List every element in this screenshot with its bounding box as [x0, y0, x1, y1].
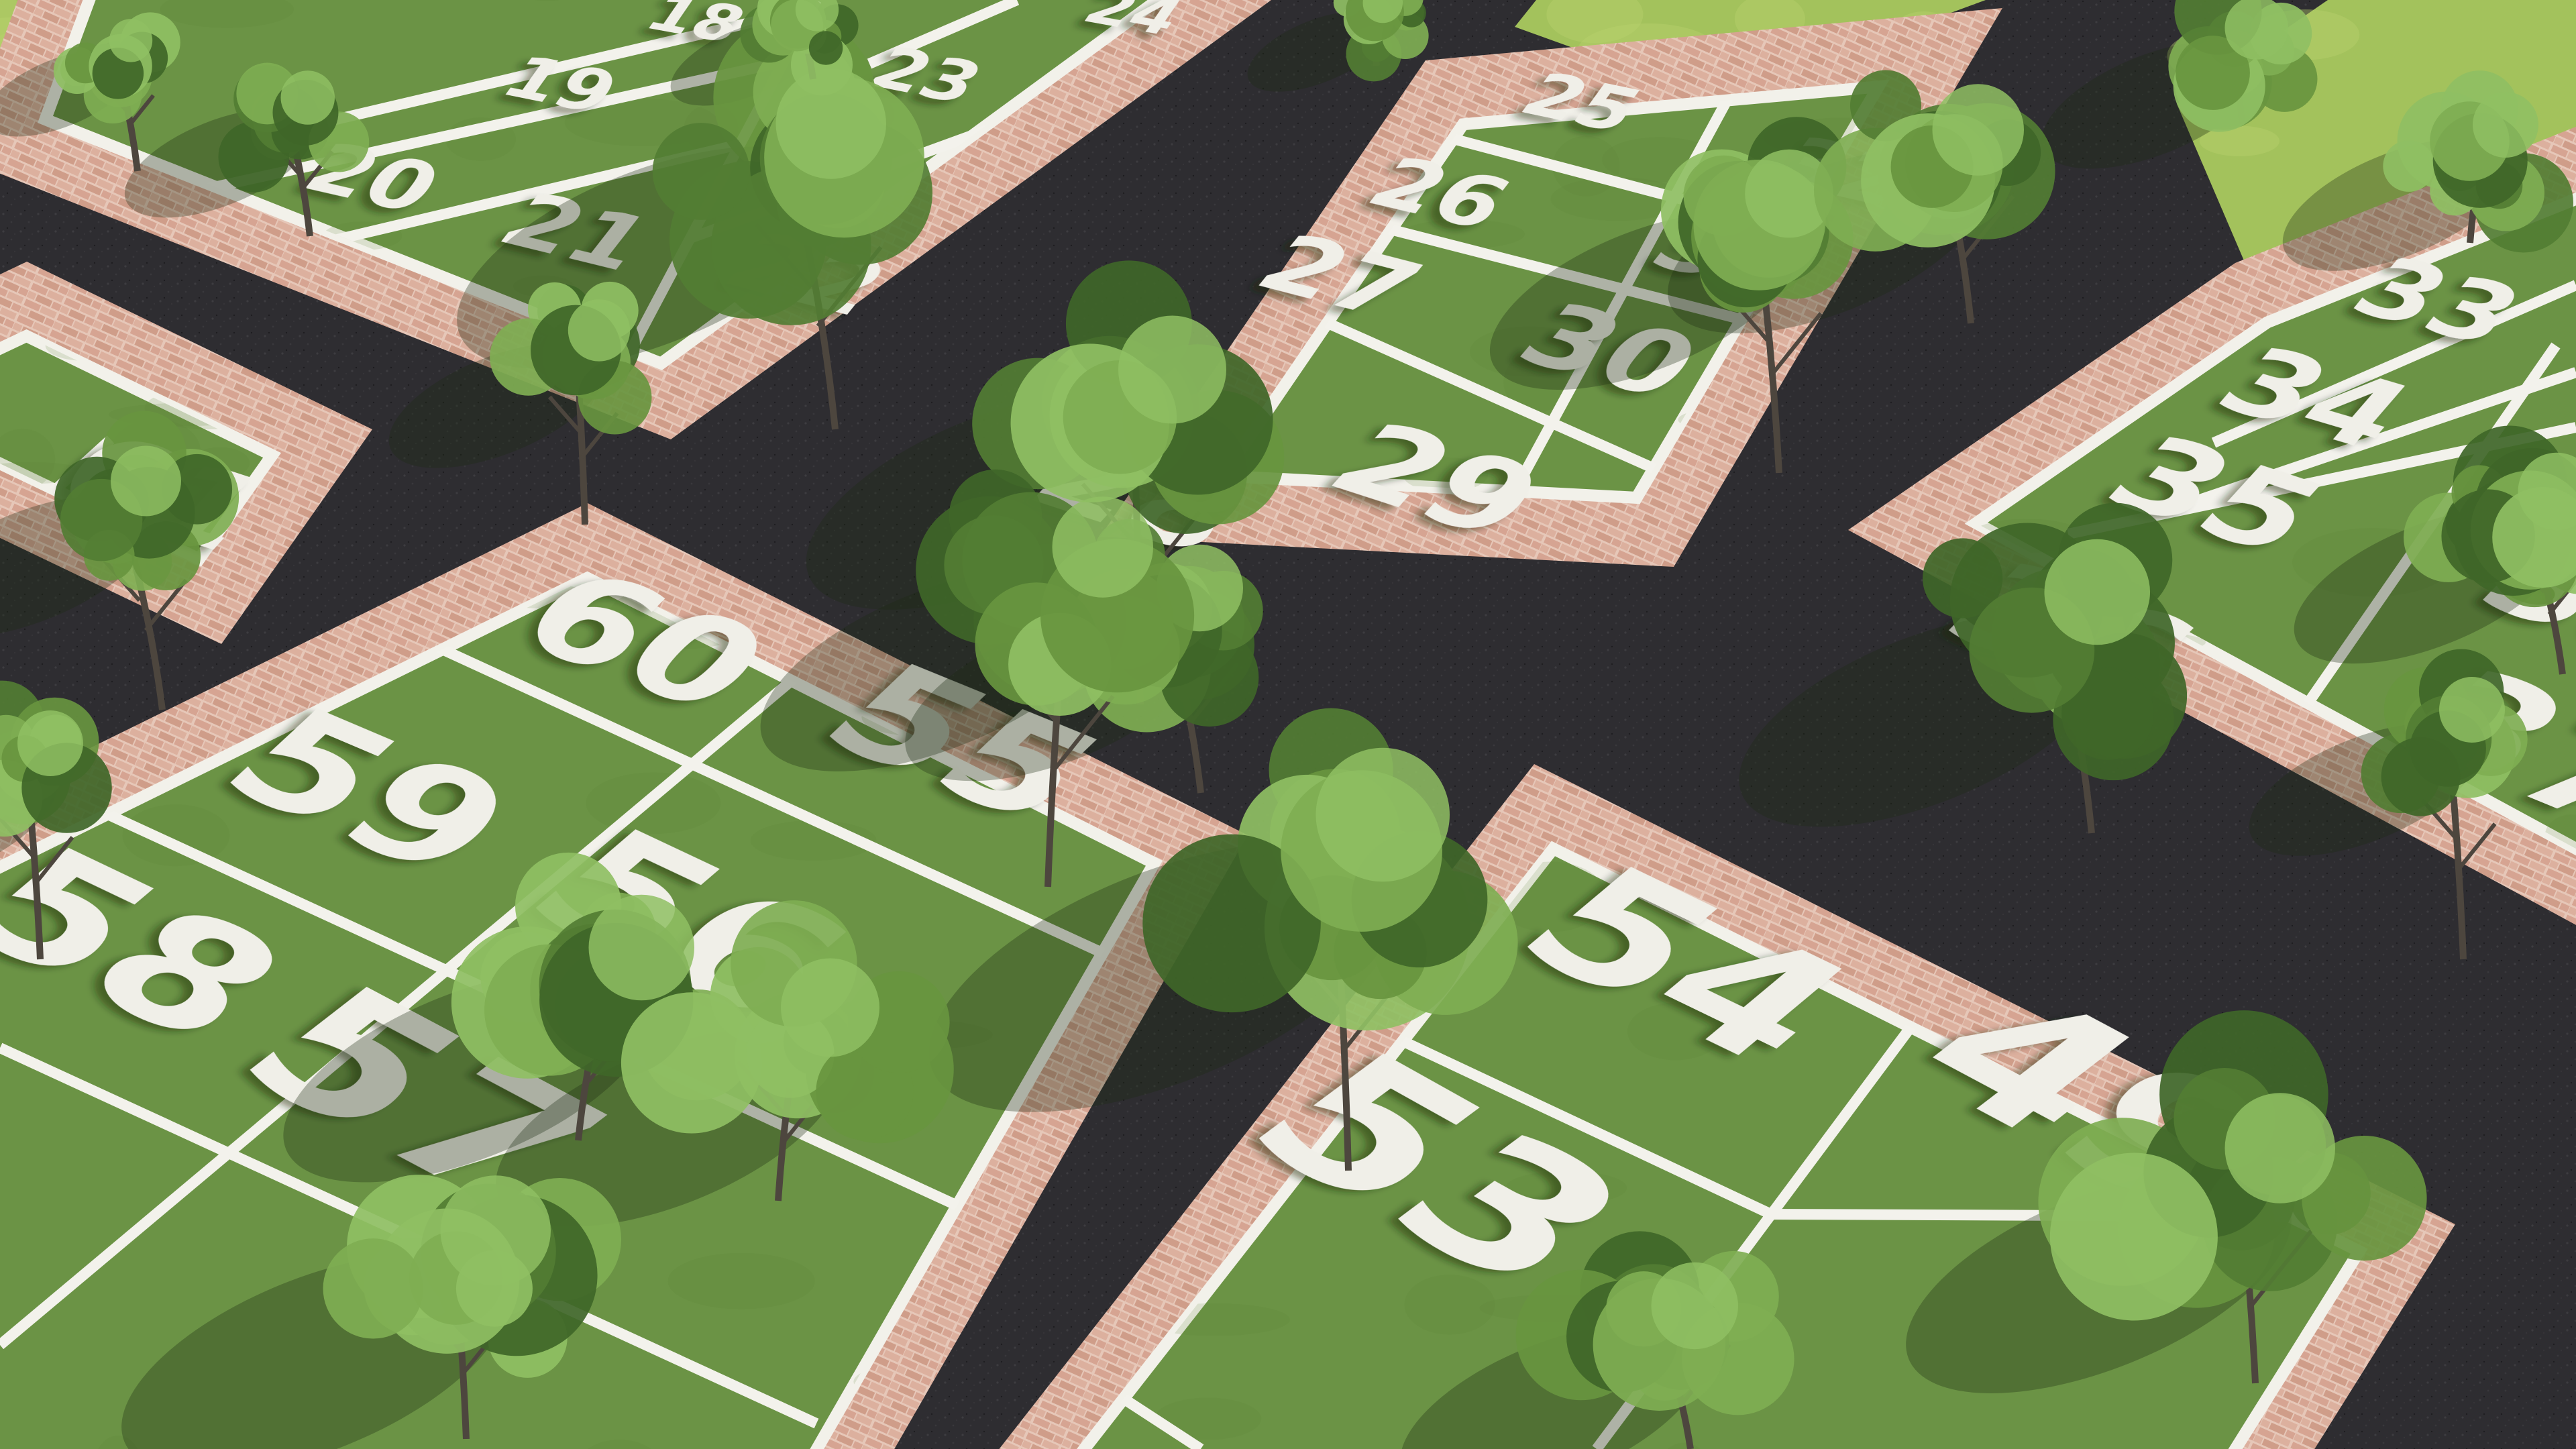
tree-foliage-highlight — [589, 895, 695, 1001]
tree-foliage-highlight — [441, 1175, 551, 1286]
tree-foliage — [2381, 737, 2461, 816]
tree-foliage — [809, 31, 843, 64]
tree-foliage-highlight — [781, 959, 879, 1057]
tree-foliage — [2383, 140, 2434, 192]
tree-foliage-highlight — [1118, 316, 1226, 424]
tree-foliage — [323, 1238, 423, 1338]
tree-foliage-highlight — [2473, 92, 2538, 158]
tree-foliage-highlight — [1652, 1263, 1739, 1350]
tree-foliage — [653, 123, 750, 220]
tree-foliage-highlight — [2439, 677, 2505, 743]
tree-foliage-highlight — [1053, 496, 1154, 598]
tree-foliage-highlight — [109, 19, 152, 62]
tree-foliage-highlight — [17, 710, 83, 776]
tree-foliage-highlight — [2045, 539, 2151, 645]
tree-foliage-highlight — [2225, 1093, 2336, 1203]
tree-foliage-highlight — [1316, 748, 1450, 882]
tree-foliage — [2050, 1152, 2218, 1320]
tree-foliage-highlight — [568, 299, 630, 361]
tree-foliage-highlight — [281, 70, 335, 125]
plot-map-stage: 1819202122232425262728293031323334353637… — [0, 0, 2576, 1449]
tree-foliage-highlight — [111, 446, 181, 517]
plot-map-scene: 1819202122232425262728293031323334353637… — [0, 0, 2576, 1449]
tree-foliage-highlight — [1933, 84, 2025, 176]
